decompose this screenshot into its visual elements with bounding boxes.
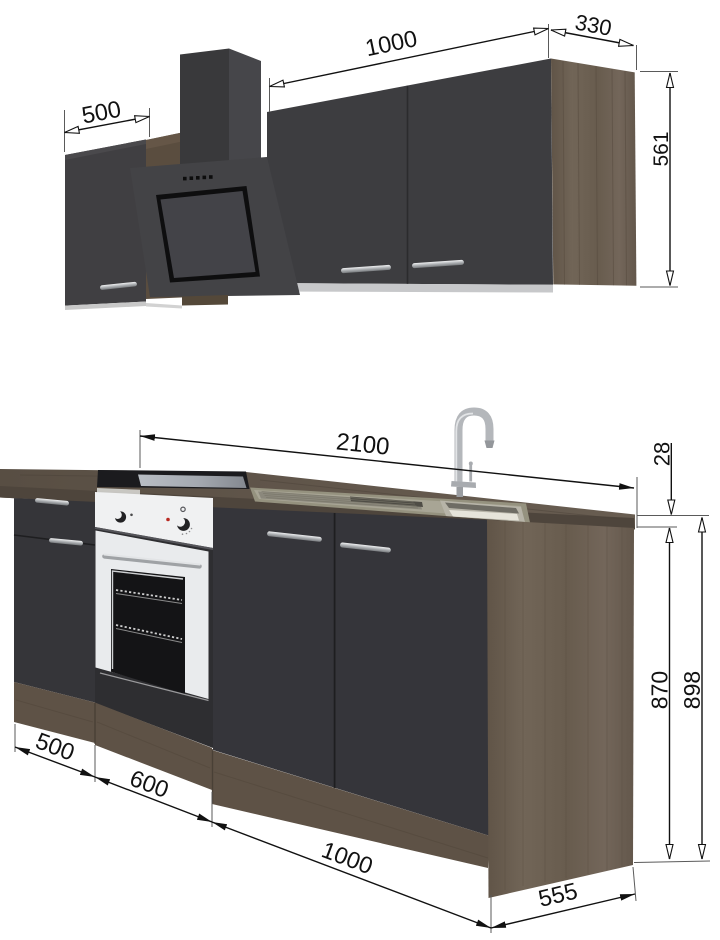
- svg-text:28: 28: [650, 442, 675, 466]
- svg-text:870: 870: [647, 671, 673, 709]
- svg-text:2100: 2100: [335, 428, 391, 460]
- svg-text:898: 898: [679, 671, 705, 709]
- svg-text:561: 561: [650, 131, 673, 166]
